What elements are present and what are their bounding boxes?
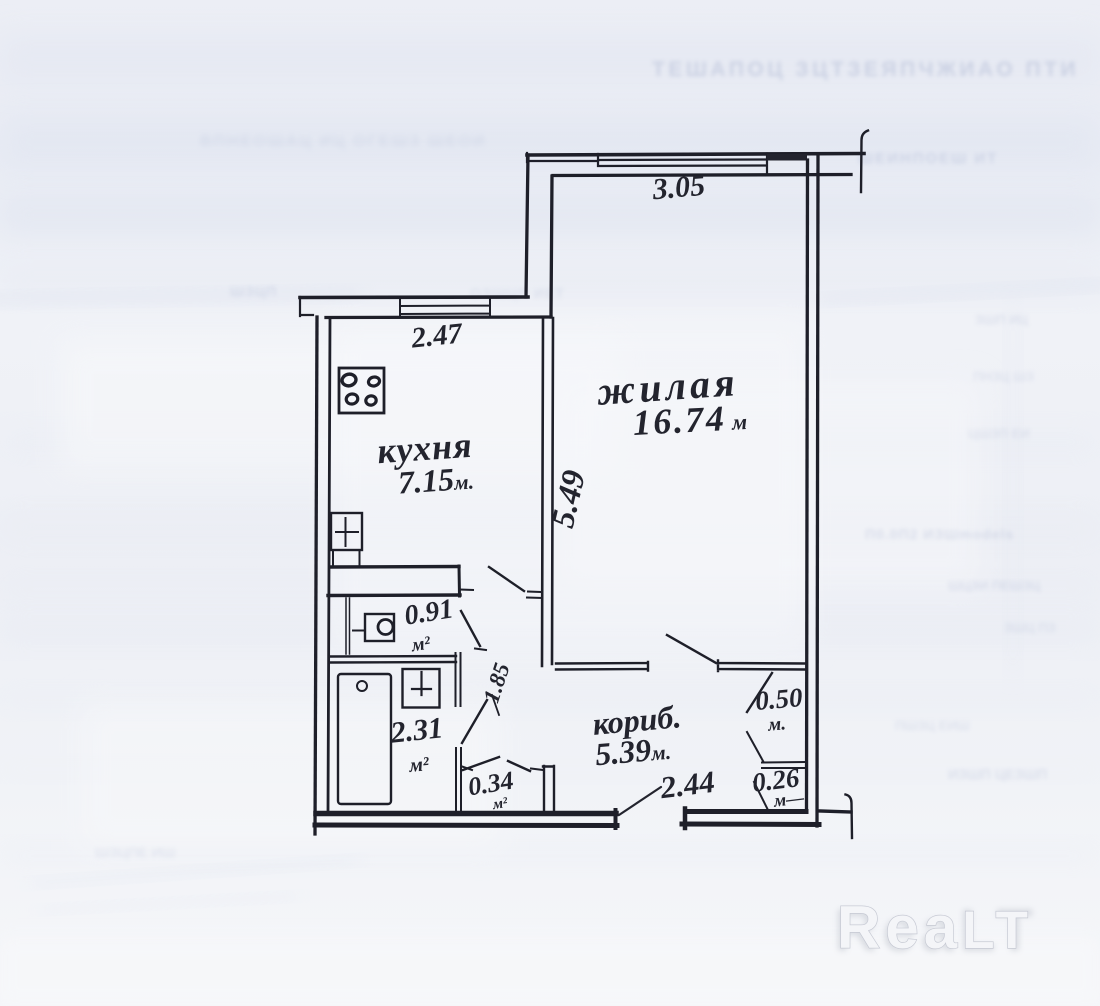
svg-text:ТЕШАПОЦ ЗЦТЗЕЯПЧЖИАО ПТИ: ТЕШАПОЦ ЗЦТЗЕЯПЧЖИАО ПТИ	[652, 58, 1079, 81]
svg-text:м.: м.	[766, 713, 787, 736]
svg-text:ReaLT: ReaLT	[837, 894, 1033, 961]
svg-text:ИЗШП ЦЕЗШП: ИЗШП ЦЕЗШП	[948, 766, 1047, 782]
svg-text:2.47: 2.47	[409, 317, 465, 354]
svg-text:2.31: 2.31	[388, 711, 445, 749]
svg-text:ПНЗЦ ШЗ: ПНЗЦ ШЗ	[973, 369, 1034, 384]
svg-text:ЗШП ИЦ: ЗШП ИЦ	[975, 312, 1029, 327]
svg-text:м²: м²	[407, 753, 431, 777]
svg-text:м—: м—	[772, 787, 806, 811]
svg-text:0.50: 0.50	[754, 682, 804, 716]
svg-text:ВПНЕОШАЦ ИЦ ОГЕШЗ ШЕОИ: ВПНЕОШАЦ ИЦ ОГЕШЗ ШЕОИ	[200, 133, 487, 150]
svg-text:ЗШЦ ПЗ: ЗШЦ ПЗ	[1004, 620, 1056, 635]
svg-text:ЦШЗП ЕИ: ЦШЗП ЕИ	[968, 426, 1030, 441]
svg-text:ШЦЗИ ПЕШЗЦ: ШЦЗИ ПЕШЗЦ	[948, 578, 1041, 593]
svg-text:П0.0П2 ИЗШmodels: П0.0П2 ИЗШmodels	[865, 526, 1014, 542]
svg-text:2.44: 2.44	[658, 764, 717, 805]
svg-text:ШЗЦПЕ ИШ: ШЗЦПЕ ИШ	[95, 844, 176, 860]
svg-text:м²: м²	[491, 795, 510, 813]
svg-text:ШЕИНПОЕШ ИТ: ШЕИНПОЕШ ИТ	[858, 150, 998, 167]
svg-text:3.05: 3.05	[650, 169, 706, 207]
svg-text:ПШЗЦ ЕИШ: ПШЗЦ ЕИШ	[895, 718, 970, 733]
svg-text:ШЗЦП: ШЗЦП	[230, 283, 277, 299]
